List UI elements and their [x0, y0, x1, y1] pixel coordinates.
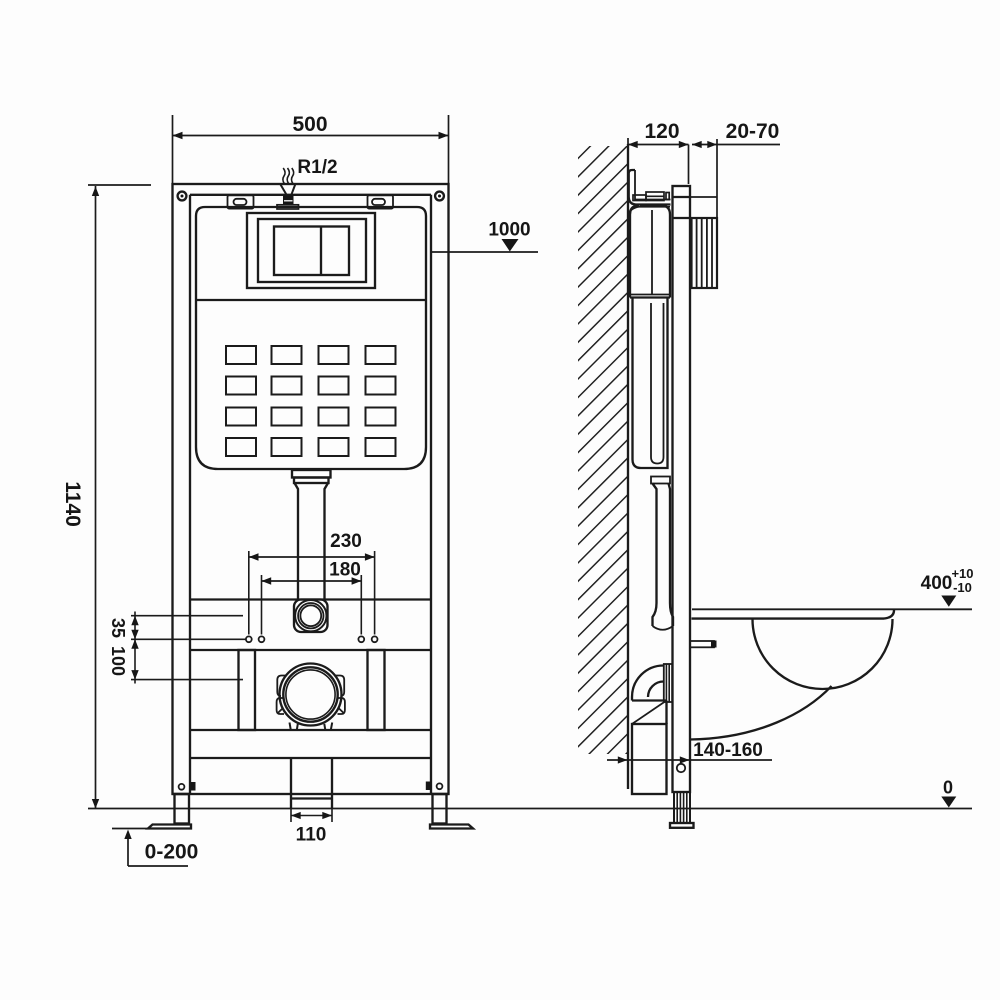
svg-text:500: 500 — [292, 113, 327, 136]
svg-text:230: 230 — [330, 531, 362, 552]
svg-text:0: 0 — [943, 778, 953, 798]
svg-text:+10: +10 — [951, 566, 973, 581]
svg-text:120: 120 — [644, 120, 679, 143]
svg-text:1000: 1000 — [488, 220, 530, 241]
svg-text:35: 35 — [108, 618, 128, 638]
svg-text:R1/2: R1/2 — [297, 157, 337, 178]
svg-text:20-70: 20-70 — [726, 120, 780, 143]
svg-text:180: 180 — [329, 560, 361, 581]
svg-text:100: 100 — [108, 646, 128, 676]
svg-text:-10: -10 — [953, 580, 972, 595]
svg-text:400: 400 — [921, 573, 953, 594]
svg-text:110: 110 — [296, 825, 327, 846]
svg-text:1140: 1140 — [61, 481, 84, 527]
svg-text:0-200: 0-200 — [145, 841, 199, 864]
svg-text:140-160: 140-160 — [693, 740, 763, 761]
